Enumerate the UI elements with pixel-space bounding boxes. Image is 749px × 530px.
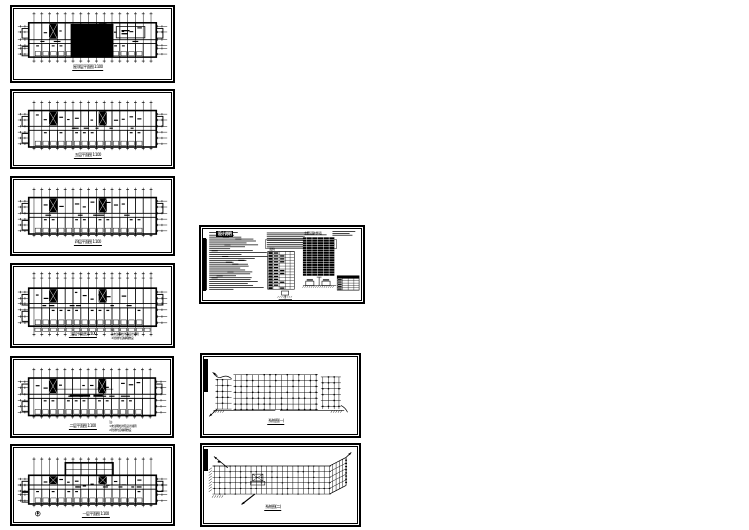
floor1-plan-title: 一层平面图 1:100: [82, 512, 110, 518]
floor4-plan-title: 四层平面图 1:100: [74, 240, 102, 246]
design-notes-linework: [203, 229, 361, 300]
design-notes-frame: 设计说明 主要设备材料表 图例: [202, 228, 362, 301]
system-diagram1-sheet: 系统图(一): [200, 353, 361, 438]
floor5-plan-frame: 五层平面图 1:100: [13, 92, 172, 166]
floor3-plan-frame: 三层平面图 1:100 注: 1.未注明处详见设计说明 2.管线均沿墙暗敷设: [13, 266, 172, 345]
note-line: 2.管线均沿墙暗敷设: [109, 429, 136, 433]
margin-ink-bar: [203, 238, 206, 292]
system-diagram2-linework: [204, 447, 357, 523]
floor4-plan-sheet: 四层平面图 1:100: [10, 176, 175, 256]
floor2-plan-title: 二层平面图 1:100: [69, 424, 97, 430]
roof-plan-title: 屋顶层平面图 1:100: [72, 65, 104, 71]
floor1-plan-frame: 一层平面图 1:100: [13, 447, 172, 523]
system-diagram2-title: 系统图(二): [264, 505, 282, 511]
roof-plan-frame: 屋顶层平面图 1:100: [13, 8, 172, 80]
floor5-plan-sheet: 五层平面图 1:100: [10, 89, 175, 169]
margin-ink-bar: [204, 449, 208, 472]
floor3-plan-title: 三层平面图 1:100: [69, 332, 97, 338]
cad-sheet-overview: { "colors": { "paper": "#ffffff", "ink":…: [0, 0, 749, 530]
design-notes-heading: 设计说明: [216, 231, 234, 237]
floor3-plan-sheet: 三层平面图 1:100 注: 1.未注明处详见设计说明 2.管线均沿墙暗敷设: [10, 263, 175, 348]
note-line: 2.管线均沿墙暗敷设: [111, 337, 138, 341]
floor2-plan-notes: 注: 1.未注明处详见设计说明 2.管线均沿墙暗敷设: [109, 421, 136, 433]
floor2-plan-sheet: 二层平面图 1:100 注: 1.未注明处详见设计说明 2.管线均沿墙暗敷设: [10, 356, 174, 438]
floor5-plan-title: 五层平面图 1:100: [74, 153, 102, 159]
system-diagram1-frame: 系统图(一): [203, 356, 358, 435]
margin-ink-bar: [204, 359, 208, 393]
legend-table-caption: 图例: [269, 248, 274, 251]
floor2-plan-frame: 二层平面图 1:100 注: 1.未注明处详见设计说明 2.管线均沿墙暗敷设: [13, 359, 171, 435]
design-notes-sheet: 设计说明 主要设备材料表 图例: [199, 225, 365, 304]
system-diagram2-sheet: 系统图(二): [200, 443, 361, 527]
equipment-table-caption: 主要设备材料表: [304, 232, 322, 235]
roof-plan-sheet: 屋顶层平面图 1:100: [10, 5, 175, 83]
floor3-plan-notes: 注: 1.未注明处详见设计说明 2.管线均沿墙暗敷设: [111, 329, 138, 341]
floor4-plan-frame: 四层平面图 1:100: [13, 179, 172, 253]
system-diagram1-title: 系统图(一): [267, 419, 285, 425]
system-diagram2-frame: 系统图(二): [203, 446, 358, 524]
floor1-plan-sheet: 一层平面图 1:100: [10, 444, 175, 526]
